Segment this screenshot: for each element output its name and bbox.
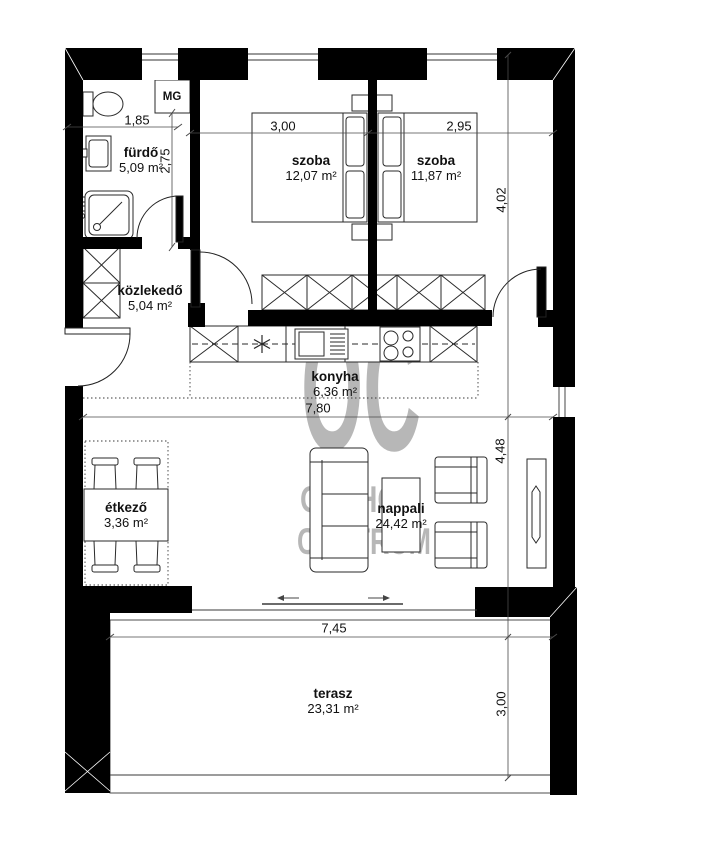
sliding-terrace-door (192, 595, 477, 610)
window-icon (427, 48, 497, 80)
shower-icon (79, 191, 133, 239)
dimension-label: 2,75 (158, 148, 173, 173)
room-area: 24,42 m² (375, 516, 426, 531)
room-name: közlekedő (117, 283, 182, 298)
dimension-label: 7,45 (321, 621, 346, 636)
wall-bathroom-south (83, 237, 142, 249)
tv-unit-icon (527, 459, 546, 568)
room-area: 12,07 m² (285, 168, 336, 183)
wall-terrace-west (65, 586, 110, 793)
room-name: nappali (375, 501, 426, 516)
wall-east-upper (553, 48, 575, 387)
floor-plan: OC OTTHON CENTRUM (0, 0, 723, 863)
room-label-bedroom1: szoba 12,07 m² (285, 153, 336, 183)
wall-north (65, 48, 575, 80)
room-name: fürdő (119, 145, 163, 160)
floor-plan-drawing: OC OTTHON CENTRUM (0, 0, 723, 863)
bathroom-door (137, 196, 183, 242)
room-area: 6,36 m² (311, 384, 358, 399)
kitchen-sink-icon (295, 329, 348, 359)
sliding-door-arrows (277, 595, 390, 601)
wall-south-left (83, 586, 192, 613)
room-name: terasz (307, 686, 358, 701)
room-name: konyha (311, 369, 358, 384)
room-label-bathroom: fürdő 5,09 m² (119, 145, 163, 175)
room-name: szoba (285, 153, 336, 168)
stove-icon (380, 327, 420, 361)
wardrobe-icon (83, 247, 120, 318)
wall-terrace-east (550, 587, 577, 795)
wall-bedroom-divider (368, 80, 377, 326)
room-area: 23,31 m² (307, 701, 358, 716)
room-label-terrace: terasz 23,31 m² (307, 686, 358, 716)
utility-shaft-label: MG (163, 91, 182, 103)
armchair-icon (435, 457, 487, 503)
kitchen-counter (190, 326, 477, 362)
room-area: 5,09 m² (119, 160, 163, 175)
armchair-icon (435, 522, 487, 568)
room-label-kitchen: konyha 6,36 m² (311, 369, 358, 399)
dimension-label: 3,00 (494, 691, 509, 716)
room-label-hallway: közlekedő 5,04 m² (117, 283, 182, 313)
wall-west-mid (65, 386, 83, 586)
window-icon (248, 48, 318, 80)
wall-west-upper (65, 80, 83, 328)
bedroom1-door (191, 250, 252, 307)
room-area: 5,04 m² (117, 298, 182, 313)
sofa-icon (310, 448, 368, 572)
entrance-opening (65, 328, 83, 386)
room-area: 11,87 m² (411, 168, 461, 183)
dimension-label: 4,02 (494, 187, 509, 212)
room-area: 3,36 m² (104, 515, 148, 530)
window-icon (142, 48, 178, 80)
bedroom2-door (493, 267, 546, 317)
dimension-label: 3,00 (270, 119, 295, 134)
wall-east-mid (553, 417, 575, 587)
dimension-label: 4,48 (493, 438, 508, 463)
dimension-label: 2,95 (446, 119, 471, 134)
dimension-label: 7,80 (305, 401, 330, 416)
window-icon (553, 387, 575, 417)
room-label-dining: étkező 3,36 m² (104, 500, 148, 530)
dimension-label: 1,85 (124, 113, 149, 128)
room-label-living: nappali 24,42 m² (375, 501, 426, 531)
wall-kitchen (248, 310, 492, 326)
wall-south-right (475, 587, 553, 617)
room-name: szoba (411, 153, 461, 168)
sink-icon (82, 136, 111, 171)
room-name: étkező (104, 500, 148, 515)
room-label-bedroom2: szoba 11,87 m² (411, 153, 461, 183)
wall-hall-bedroom (190, 80, 200, 250)
toilet-icon (83, 92, 123, 116)
